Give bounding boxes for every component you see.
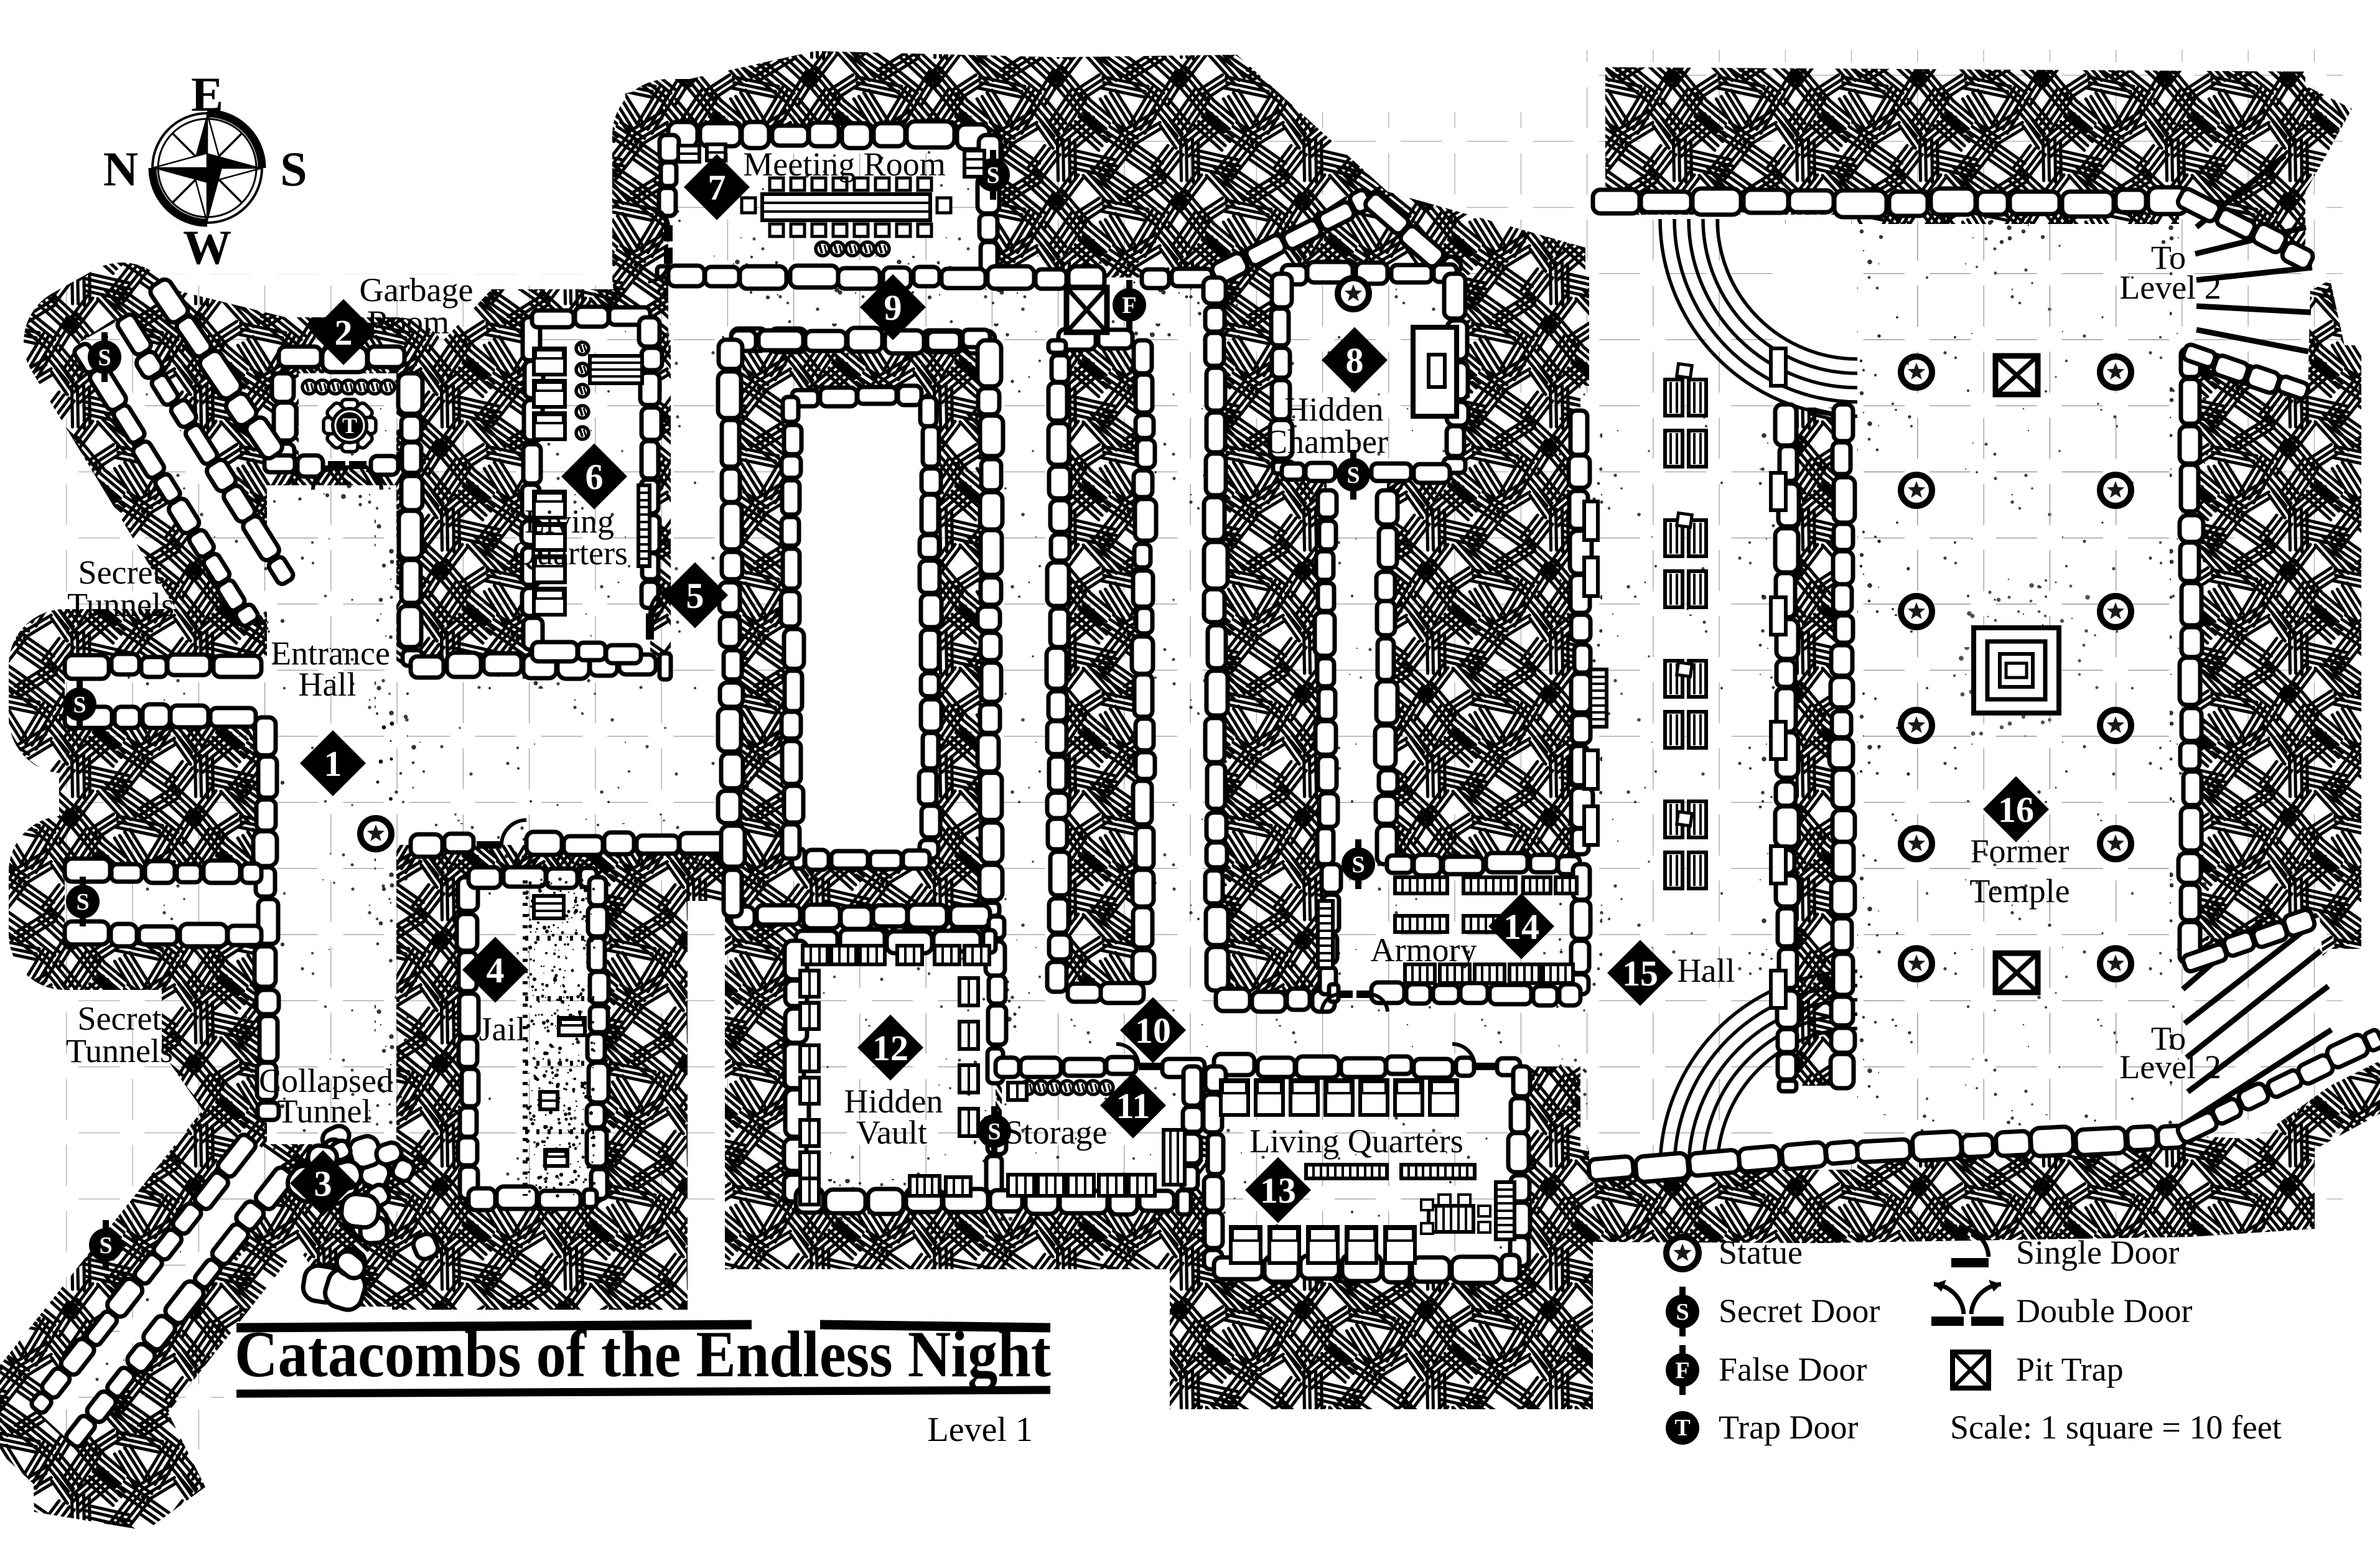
svg-text:12: 12 [872,1028,908,1068]
svg-text:8: 8 [1346,340,1364,381]
svg-text:11: 11 [1116,1086,1150,1126]
svg-text:Secret: Secret [78,1000,162,1037]
svg-text:Level 1: Level 1 [928,1410,1033,1449]
svg-text:7: 7 [708,167,726,208]
svg-text:N: N [103,142,138,196]
svg-text:Meeting Room: Meeting Room [743,146,945,183]
svg-text:Former: Former [1971,832,2070,870]
svg-text:Hidden: Hidden [1285,391,1384,428]
svg-text:T: T [342,413,357,438]
svg-text:Quarters: Quarters [512,534,628,572]
svg-text:Single Door: Single Door [2016,1234,2180,1271]
svg-text:Statue: Statue [1719,1234,1803,1271]
svg-text:Armory: Armory [1371,931,1477,969]
svg-text:E: E [191,67,223,121]
svg-text:Tunnels: Tunnels [66,1032,173,1070]
svg-text:S: S [1676,1299,1689,1325]
svg-text:Living Quarters: Living Quarters [1249,1122,1463,1160]
svg-text:W: W [183,220,231,274]
svg-text:Tunnels: Tunnels [67,586,174,623]
svg-text:False Door: False Door [1719,1351,1867,1388]
svg-text:Room: Room [367,304,449,341]
svg-text:4: 4 [487,950,505,991]
svg-text:T: T [1674,1415,1690,1441]
svg-text:10: 10 [1135,1010,1171,1051]
svg-text:2: 2 [335,312,353,353]
svg-text:S: S [76,889,89,915]
svg-text:Jail: Jail [479,1010,526,1048]
svg-text:Hall: Hall [299,666,357,703]
svg-text:Pit Trap: Pit Trap [2016,1351,2124,1388]
svg-text:S: S [1351,852,1365,878]
svg-text:Tunnel: Tunnel [277,1093,371,1130]
svg-text:Garbage: Garbage [360,271,474,309]
svg-text:9: 9 [884,287,902,328]
svg-text:Trap Door: Trap Door [1719,1409,1859,1446]
svg-text:F: F [1675,1358,1689,1384]
svg-text:F: F [1122,292,1136,319]
svg-text:S: S [986,162,999,189]
svg-text:S: S [73,692,86,718]
svg-text:13: 13 [1260,1170,1296,1211]
svg-text:Level 2: Level 2 [2119,1048,2221,1086]
svg-text:Temple: Temple [1969,872,2070,910]
svg-text:Vault: Vault [856,1114,927,1151]
svg-text:S: S [99,1233,112,1259]
svg-text:Chamber: Chamber [1265,423,1388,460]
svg-text:Double Door: Double Door [2016,1292,2192,1330]
svg-text:Storage: Storage [1005,1114,1108,1151]
svg-text:16: 16 [1998,790,2034,830]
svg-text:Secret Door: Secret Door [1719,1292,1880,1330]
svg-text:15: 15 [1622,953,1658,994]
svg-text:S: S [987,1119,1001,1145]
svg-text:Catacombs of the Endless Night: Catacombs of the Endless Night [235,1318,1051,1391]
svg-text:Secret: Secret [78,554,162,591]
svg-text:Level 2: Level 2 [2119,269,2221,306]
svg-text:1: 1 [324,744,342,784]
svg-text:S: S [1346,462,1360,488]
svg-text:6: 6 [586,457,604,497]
svg-text:5: 5 [686,576,704,616]
svg-text:14: 14 [1503,907,1539,947]
svg-text:Hall: Hall [1678,952,1735,989]
svg-text:Scale: 1 square = 10 feet: Scale: 1 square = 10 feet [1950,1409,2282,1446]
svg-text:3: 3 [314,1163,332,1204]
svg-text:S: S [280,142,307,196]
svg-text:S: S [98,345,111,371]
